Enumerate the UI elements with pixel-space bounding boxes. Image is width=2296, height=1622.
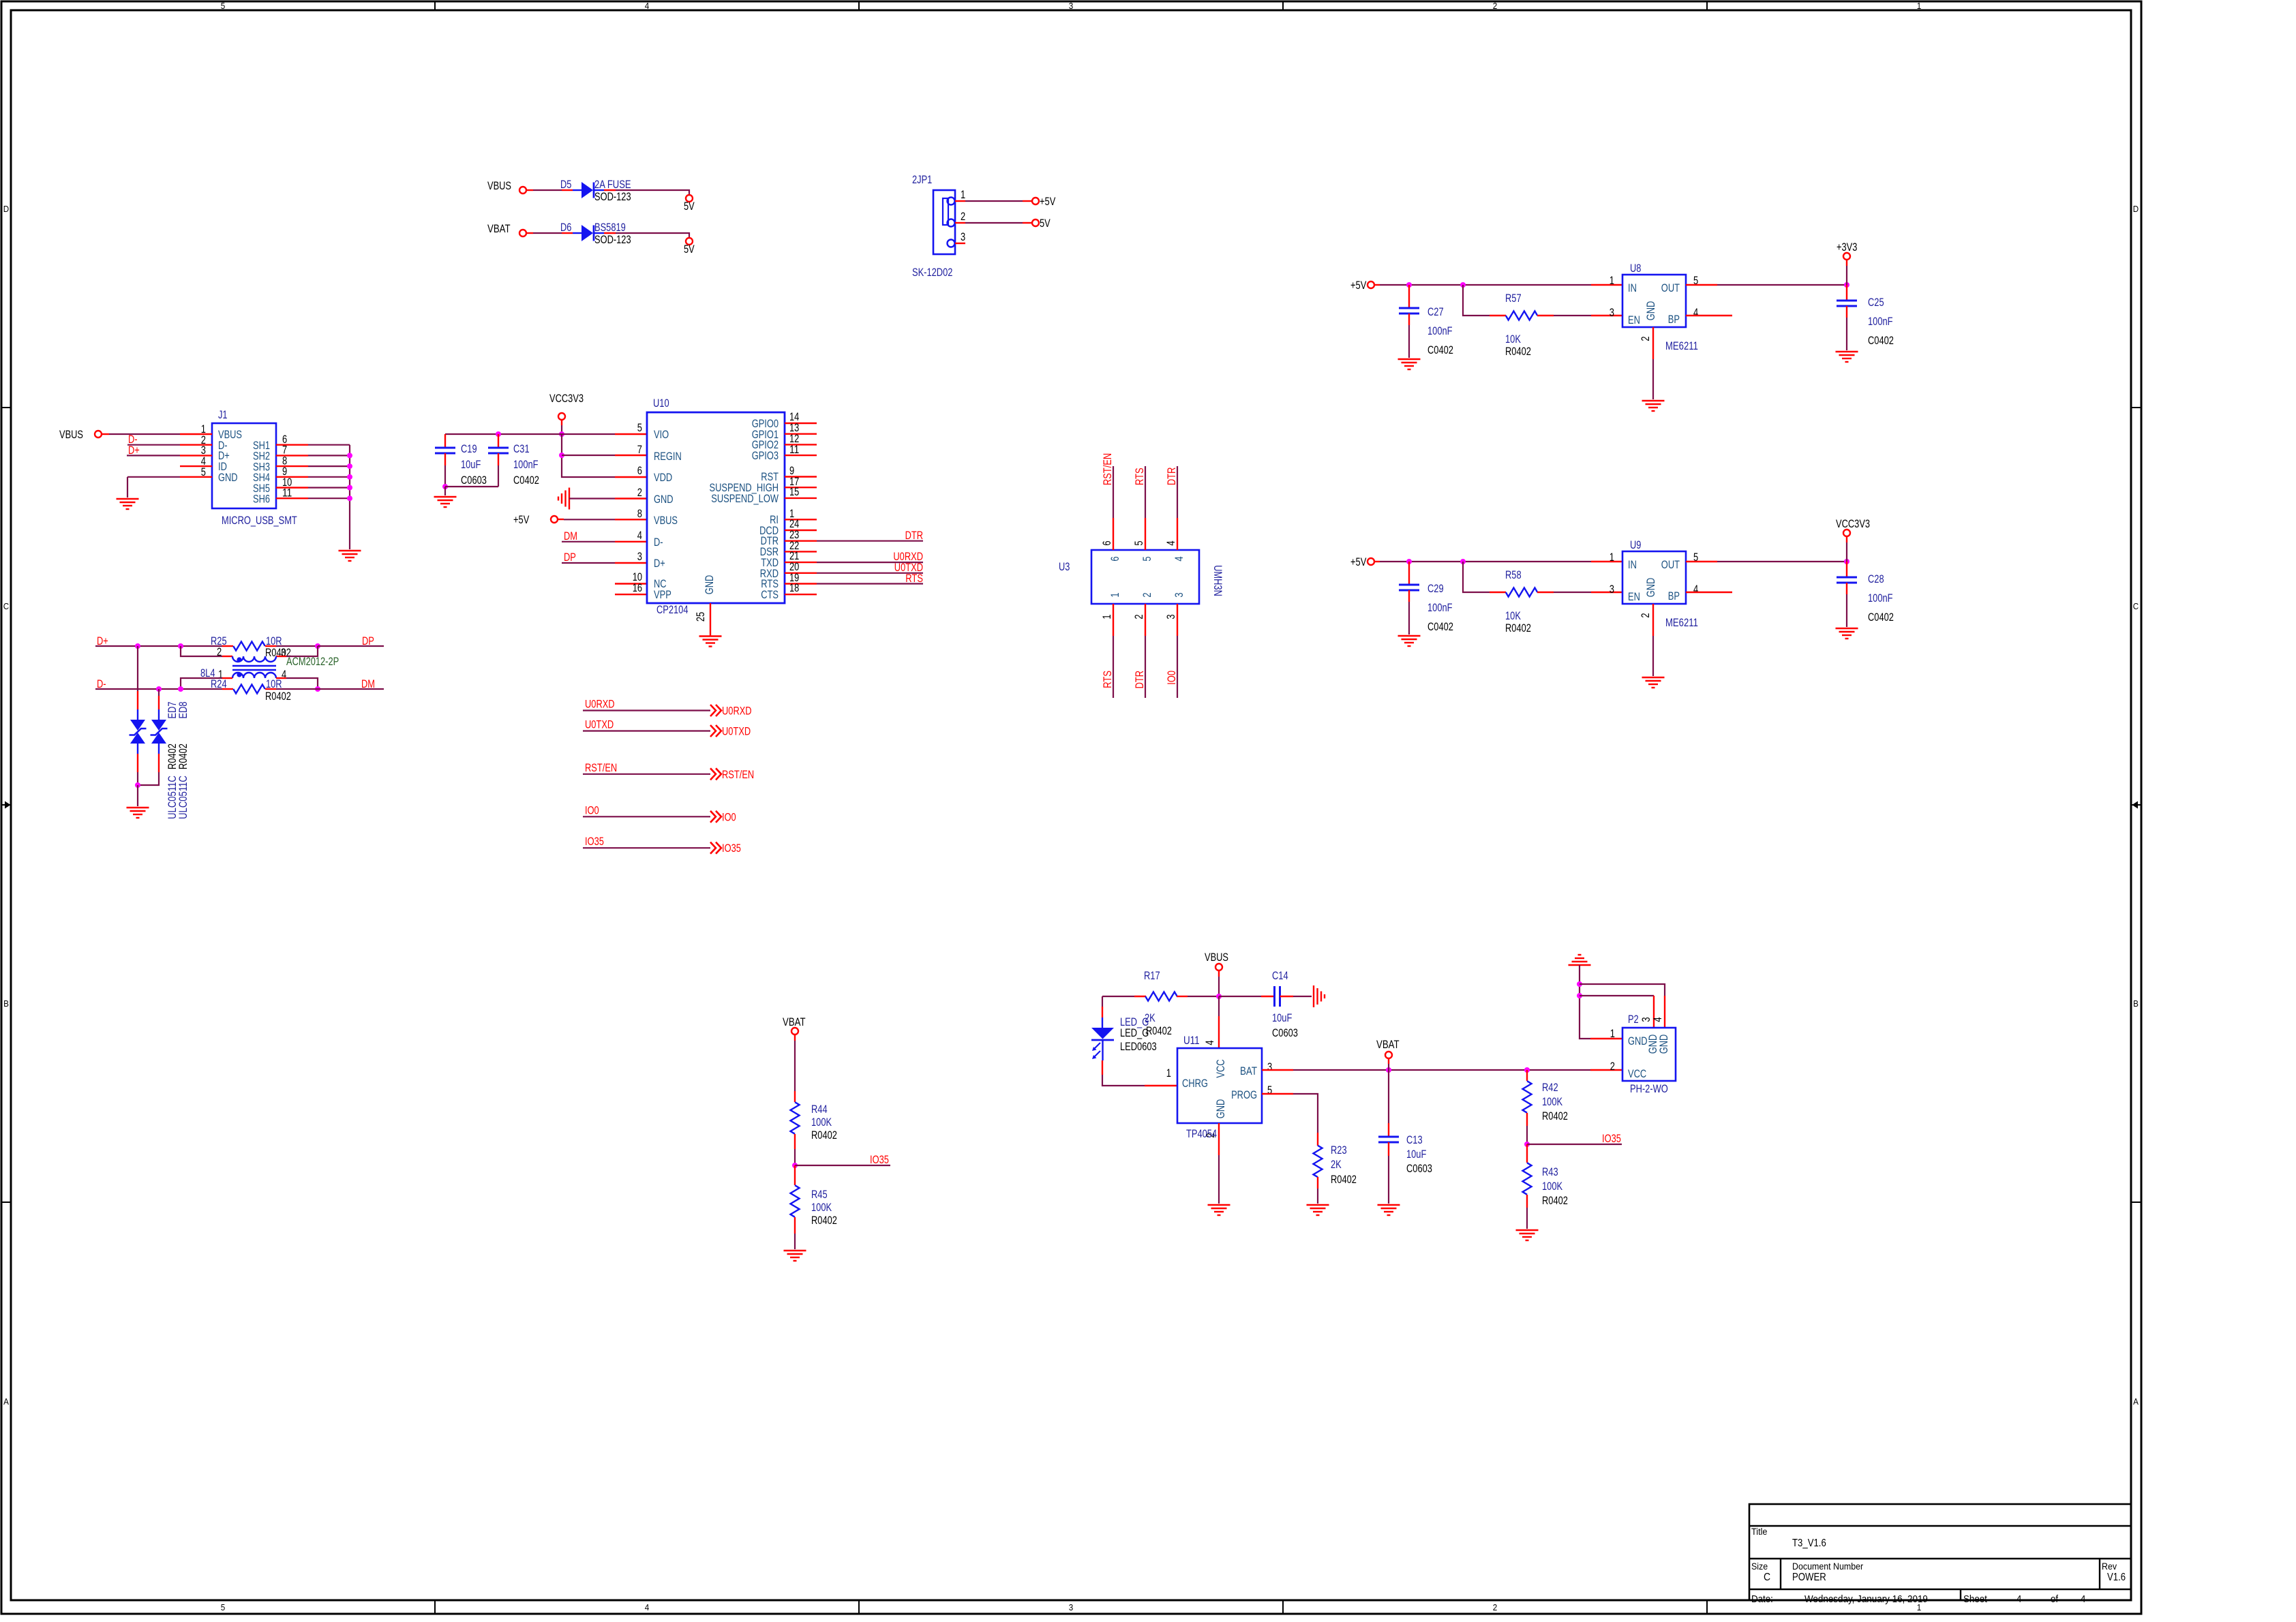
svg-text:DP: DP [564,551,576,564]
svg-text:4: 4 [637,530,642,542]
svg-text:B: B [3,998,9,1009]
svg-text:+5V: +5V [1040,196,1055,208]
svg-text:D6: D6 [560,221,571,234]
svg-text:VCC: VCC [1628,1068,1646,1080]
svg-text:U8: U8 [1630,262,1641,275]
svg-text:3: 3 [1069,1602,1074,1612]
svg-text:C0603: C0603 [461,474,487,487]
svg-text:OUT: OUT [1661,282,1680,294]
svg-text:+5V: +5V [513,514,529,526]
svg-text:D: D [3,204,9,214]
svg-text:RTS: RTS [905,572,923,585]
svg-text:BS5819: BS5819 [594,221,626,234]
svg-text:4: 4 [1165,540,1177,545]
svg-text:RTS: RTS [1134,468,1146,485]
svg-text:10uF: 10uF [461,459,481,471]
svg-text:C: C [2133,601,2139,611]
svg-text:ME6211: ME6211 [1665,617,1698,629]
svg-text:5: 5 [1141,556,1153,561]
svg-text:1: 1 [1101,614,1113,619]
svg-text:R0402: R0402 [1542,1195,1568,1207]
svg-text:C0402: C0402 [513,474,539,487]
svg-text:2: 2 [1133,614,1145,619]
svg-text:15: 15 [789,486,799,498]
svg-text:R58: R58 [1505,569,1522,581]
svg-text:VBUS: VBUS [487,180,511,192]
svg-text:6: 6 [1101,540,1113,545]
svg-text:11: 11 [789,444,799,456]
svg-text:of: of [2051,1594,2059,1605]
svg-text:3: 3 [637,551,642,563]
svg-text:11: 11 [282,487,292,500]
svg-text:+3V3: +3V3 [1837,241,1857,254]
svg-text:7: 7 [637,444,642,456]
svg-text:2: 2 [1141,592,1153,597]
svg-text:3: 3 [1165,614,1177,619]
svg-text:D5: D5 [560,179,571,191]
svg-text:IN: IN [1628,282,1637,294]
svg-text:EN: EN [1628,591,1640,603]
svg-text:C29: C29 [1428,583,1444,595]
svg-text:DM: DM [361,678,375,690]
svg-text:SK-12D02: SK-12D02 [912,266,952,279]
svg-text:IO0: IO0 [585,804,599,816]
svg-text:6: 6 [637,465,642,477]
svg-text:C13: C13 [1406,1134,1423,1146]
svg-text:PH-2-WO: PH-2-WO [1630,1083,1668,1095]
svg-text:4: 4 [1173,556,1185,561]
svg-text:VBUS: VBUS [1205,951,1228,964]
svg-text:R0402: R0402 [1505,346,1531,358]
svg-text:5V: 5V [684,243,695,256]
svg-text:IO0: IO0 [1166,671,1178,685]
svg-text:R0402: R0402 [811,1129,837,1142]
svg-text:T3_V1.6: T3_V1.6 [1792,1537,1826,1549]
svg-text:C31: C31 [513,443,530,455]
svg-text:C0603: C0603 [1272,1027,1298,1039]
svg-text:D+: D+ [654,557,665,570]
svg-text:GPIO3: GPIO3 [752,450,779,462]
svg-text:D+: D+ [128,444,140,457]
svg-text:Rev: Rev [2102,1561,2117,1572]
svg-text:BAT: BAT [1240,1065,1257,1077]
svg-text:4: 4 [1693,307,1698,319]
svg-text:LED0603: LED0603 [1120,1041,1157,1053]
svg-text:R0402: R0402 [1146,1025,1172,1037]
svg-text:REGIN: REGIN [654,450,682,463]
svg-text:Sheet: Sheet [1963,1594,1987,1605]
svg-text:10uF: 10uF [1272,1012,1292,1024]
svg-text:POWER: POWER [1792,1572,1826,1583]
svg-text:10R: 10R [266,635,282,647]
svg-text:3: 3 [1069,1,1074,11]
svg-text:U10: U10 [653,397,669,410]
svg-text:IO35: IO35 [722,842,741,855]
svg-text:RST/EN: RST/EN [722,769,754,781]
svg-text:4: 4 [645,1,650,11]
svg-text:IN: IN [1628,559,1637,571]
svg-text:100K: 100K [811,1202,832,1214]
svg-text:25: 25 [695,612,707,622]
svg-text:RST/EN: RST/EN [1102,453,1114,485]
svg-text:5V: 5V [684,200,695,213]
svg-text:P2: P2 [1628,1013,1639,1026]
svg-text:R0402: R0402 [1542,1110,1568,1122]
svg-text:100K: 100K [1542,1180,1562,1193]
svg-text:100nF: 100nF [513,459,539,471]
svg-text:1: 1 [1917,1,1922,11]
svg-text:GND: GND [218,472,238,484]
svg-text:SOD-123: SOD-123 [594,191,631,203]
svg-text:LED_G: LED_G [1120,1027,1149,1039]
svg-text:R24: R24 [211,678,227,690]
svg-text:3: 3 [1173,592,1185,597]
svg-text:U11: U11 [1183,1035,1200,1047]
svg-text:ACM2012-2P: ACM2012-2P [286,656,339,668]
svg-text:4: 4 [1693,583,1698,596]
svg-text:C0402: C0402 [1868,611,1894,624]
svg-text:OUT: OUT [1661,559,1680,571]
svg-text:EN: EN [1628,314,1640,326]
svg-text:IO35: IO35 [1602,1133,1621,1145]
svg-text:2: 2 [1493,1602,1498,1612]
svg-text:10R: 10R [266,678,282,690]
svg-text:VPP: VPP [654,589,671,601]
svg-text:IO35: IO35 [585,836,604,848]
svg-text:10uF: 10uF [1406,1148,1426,1161]
svg-text:GND: GND [1215,1099,1227,1119]
svg-text:IO0: IO0 [722,811,736,823]
svg-text:100K: 100K [1542,1096,1562,1108]
svg-text:4: 4 [2016,1594,2021,1605]
svg-text:1: 1 [1610,1028,1615,1040]
svg-text:R23: R23 [1331,1144,1347,1157]
svg-text:C0603: C0603 [1406,1163,1432,1175]
svg-text:VBAT: VBAT [1376,1039,1400,1051]
svg-text:3: 3 [281,647,286,659]
svg-text:UMH3N: UMH3N [1211,565,1224,596]
svg-text:Document Number: Document Number [1792,1561,1864,1572]
svg-text:2A FUSE: 2A FUSE [594,179,631,191]
svg-text:D-: D- [654,536,663,549]
svg-text:R0402: R0402 [1505,622,1531,634]
svg-text:1: 1 [961,189,965,201]
svg-text:1: 1 [1610,275,1614,287]
svg-text:3: 3 [961,231,965,243]
svg-text:2: 2 [1640,336,1652,341]
svg-text:SOD-123: SOD-123 [594,234,631,246]
svg-text:CHRG: CHRG [1182,1077,1208,1090]
svg-text:B: B [2133,998,2139,1009]
svg-text:J1: J1 [218,409,228,421]
svg-text:100nF: 100nF [1868,592,1893,605]
svg-text:VBAT: VBAT [487,223,511,235]
svg-text:R45: R45 [811,1189,828,1201]
svg-text:DTR: DTR [1166,468,1178,485]
svg-text:5: 5 [1267,1084,1272,1097]
svg-text:4: 4 [1652,1017,1664,1022]
svg-text:DTR: DTR [905,530,923,542]
svg-text:VCC3V3: VCC3V3 [549,393,584,405]
svg-text:16: 16 [633,582,642,594]
svg-text:2: 2 [1493,1,1498,11]
svg-text:+5V: +5V [1350,556,1366,568]
svg-text:C27: C27 [1428,306,1444,318]
svg-text:VBUS: VBUS [654,515,678,527]
svg-text:C: C [3,601,9,611]
svg-text:VBUS: VBUS [59,429,83,441]
svg-text:C0402: C0402 [1428,344,1453,356]
svg-text:U0RXD: U0RXD [722,705,752,718]
svg-text:Wednesday, January 16, 2019: Wednesday, January 16, 2019 [1804,1594,1928,1605]
svg-text:R0402: R0402 [811,1214,837,1227]
svg-text:IO35: IO35 [870,1154,889,1166]
svg-text:R0402: R0402 [177,744,190,769]
svg-text:1: 1 [1166,1067,1171,1080]
svg-text:100K: 100K [811,1116,832,1129]
svg-text:Title: Title [1751,1527,1768,1537]
svg-text:VIO: VIO [654,429,669,441]
svg-text:10K: 10K [1505,610,1521,622]
svg-text:CP2104: CP2104 [656,604,689,616]
svg-text:18: 18 [789,582,799,594]
svg-text:SH6: SH6 [253,493,270,506]
svg-text:U3: U3 [1059,561,1070,573]
svg-text:BP: BP [1668,313,1680,326]
svg-text:C14: C14 [1272,970,1288,982]
svg-text:U0RXD: U0RXD [585,699,615,711]
svg-text:C25: C25 [1868,296,1884,309]
svg-text:GND: GND [1645,301,1657,321]
svg-text:10K: 10K [1505,333,1521,346]
svg-text:A: A [3,1396,9,1407]
svg-text:+5V: +5V [1350,279,1366,292]
svg-text:GND: GND [1658,1035,1670,1054]
svg-text:C0402: C0402 [1428,621,1453,633]
svg-text:VCC: VCC [1215,1059,1227,1077]
svg-text:RTS: RTS [1102,671,1114,688]
svg-text:DM: DM [564,530,577,542]
svg-text:ED8: ED8 [177,702,190,719]
svg-text:ME6211: ME6211 [1665,340,1698,352]
svg-text:1: 1 [1109,592,1121,597]
svg-text:8: 8 [637,508,642,520]
svg-text:3: 3 [1267,1061,1272,1073]
svg-text:5: 5 [221,1602,226,1612]
svg-text:3: 3 [1610,307,1614,319]
svg-text:4: 4 [2081,1594,2085,1605]
svg-text:DP: DP [362,635,374,647]
svg-text:RST/EN: RST/EN [585,762,617,774]
svg-text:3: 3 [1640,1017,1652,1022]
svg-text:DTR: DTR [1134,671,1146,688]
svg-text:CTS: CTS [761,589,779,601]
svg-text:2JP1: 2JP1 [912,174,932,186]
svg-text:5: 5 [1133,540,1145,545]
svg-text:R43: R43 [1542,1166,1558,1178]
svg-text:6: 6 [1109,556,1121,561]
svg-text:3: 3 [1610,583,1614,596]
svg-text:GND: GND [654,493,674,506]
svg-text:U9: U9 [1630,539,1641,551]
svg-text:100nF: 100nF [1428,325,1453,337]
svg-text:C0402: C0402 [1868,335,1894,347]
svg-text:R0402: R0402 [1331,1174,1357,1186]
svg-text:Date:: Date: [1751,1594,1773,1605]
svg-text:R0402: R0402 [265,690,291,703]
svg-text:2: 2 [637,487,642,499]
svg-text:C: C [1764,1572,1770,1583]
svg-text:C28: C28 [1868,573,1884,585]
svg-text:PROG: PROG [1231,1089,1257,1101]
svg-text:R44: R44 [811,1103,828,1116]
svg-text:U0TXD: U0TXD [722,726,751,738]
svg-text:100nF: 100nF [1868,316,1893,328]
svg-text:4: 4 [1204,1040,1216,1045]
svg-text:2: 2 [1640,613,1652,617]
svg-text:MICRO_USB_SMT: MICRO_USB_SMT [222,515,297,527]
svg-text:A: A [2133,1396,2139,1407]
svg-text:GND: GND [1645,578,1657,598]
svg-text:2K: 2K [1331,1159,1342,1171]
svg-text:U0TXD: U0TXD [585,719,614,731]
svg-text:2: 2 [961,211,965,223]
svg-text:4: 4 [645,1602,650,1612]
svg-text:ULC0511C: ULC0511C [177,776,190,819]
svg-text:BP: BP [1668,590,1680,602]
svg-text:V1.6: V1.6 [2107,1572,2126,1583]
svg-text:GND: GND [1628,1035,1648,1047]
svg-text:5: 5 [201,466,206,478]
svg-text:VCC3V3: VCC3V3 [1836,518,1870,530]
svg-text:100nF: 100nF [1428,602,1453,614]
svg-text:C19: C19 [461,443,477,455]
svg-text:R17: R17 [1144,970,1160,982]
svg-text:5: 5 [221,1,226,11]
svg-text:TP4054: TP4054 [1186,1128,1217,1140]
svg-text:R42: R42 [1542,1082,1558,1094]
svg-text:GND: GND [704,575,716,595]
svg-text:Size: Size [1751,1561,1768,1572]
svg-text:VBAT: VBAT [783,1016,806,1028]
svg-text:R57: R57 [1505,292,1522,305]
svg-text:5V: 5V [1040,217,1051,230]
svg-text:5: 5 [637,422,642,434]
svg-text:1: 1 [1610,551,1614,564]
svg-text:4: 4 [282,669,286,681]
svg-text:SUSPEND_LOW: SUSPEND_LOW [711,493,779,505]
svg-text:2: 2 [1610,1060,1615,1073]
svg-text:VDD: VDD [654,472,672,484]
svg-text:D: D [2133,204,2139,214]
